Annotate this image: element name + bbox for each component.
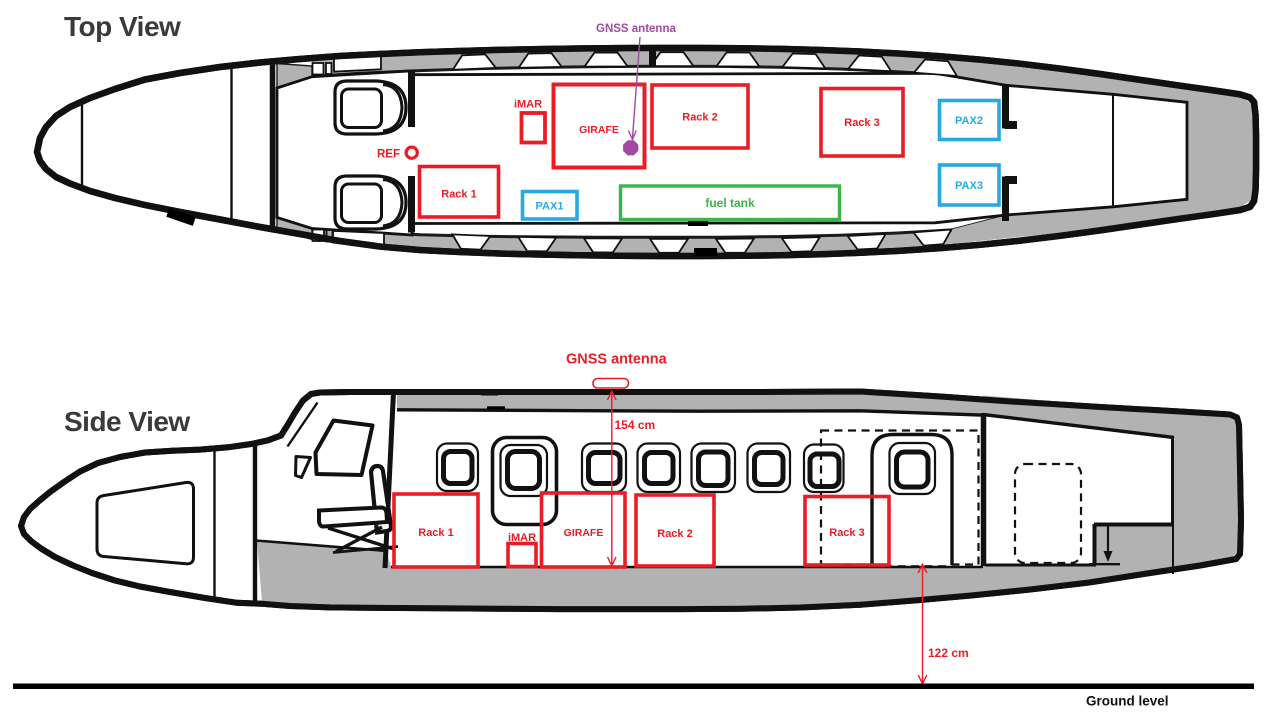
svg-text:iMAR: iMAR — [514, 99, 542, 111]
svg-text:GNSS antenna: GNSS antenna — [596, 23, 676, 35]
svg-text:GIRAFE: GIRAFE — [564, 527, 604, 539]
svg-text:Rack 2: Rack 2 — [657, 528, 692, 540]
svg-text:PAX3: PAX3 — [955, 180, 983, 192]
svg-text:REF: REF — [377, 149, 400, 161]
svg-text:PAX1: PAX1 — [536, 201, 564, 213]
svg-text:Side View: Side View — [64, 406, 190, 437]
svg-text:154 cm: 154 cm — [615, 418, 656, 432]
svg-text:122 cm: 122 cm — [928, 646, 969, 660]
svg-text:Rack 3: Rack 3 — [844, 117, 879, 129]
svg-text:GNSS antenna: GNSS antenna — [566, 352, 668, 368]
svg-text:fuel tank: fuel tank — [705, 196, 755, 210]
svg-text:Rack 1: Rack 1 — [441, 189, 476, 201]
svg-text:Rack 2: Rack 2 — [682, 112, 717, 124]
svg-text:Rack 1: Rack 1 — [418, 527, 453, 539]
svg-text:PAX2: PAX2 — [955, 115, 983, 127]
svg-text:Ground level: Ground level — [1086, 694, 1169, 709]
svg-text:Top View: Top View — [64, 11, 181, 42]
svg-text:Rack 3: Rack 3 — [829, 527, 864, 539]
svg-text:GIRAFE: GIRAFE — [579, 124, 619, 136]
